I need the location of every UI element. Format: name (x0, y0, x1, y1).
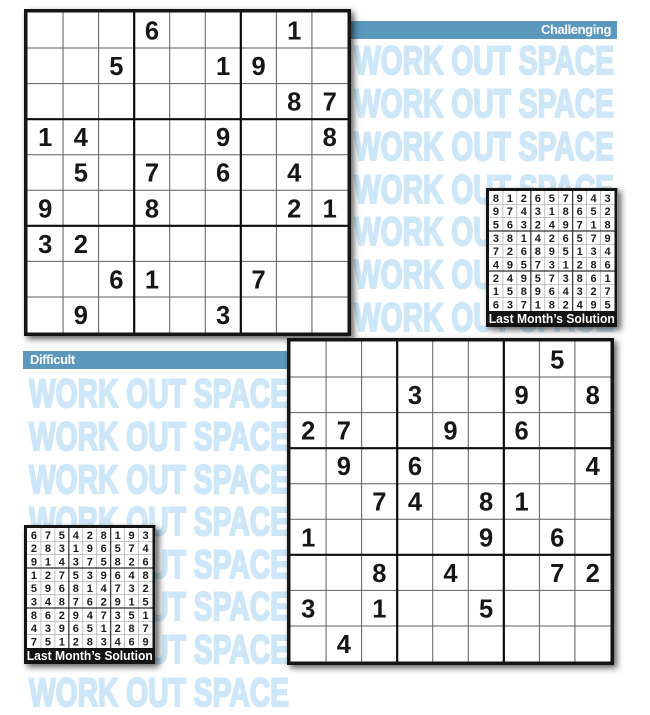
svg-text:9: 9 (479, 524, 493, 552)
svg-text:4: 4 (337, 631, 352, 659)
svg-text:4: 4 (115, 636, 122, 648)
svg-text:6: 6 (563, 233, 569, 245)
svg-text:6: 6 (507, 219, 513, 231)
svg-text:5: 5 (87, 623, 93, 635)
svg-text:5: 5 (73, 570, 79, 582)
svg-text:7: 7 (115, 583, 121, 595)
svg-text:8: 8 (493, 193, 499, 205)
svg-text:2: 2 (493, 273, 499, 285)
svg-text:6: 6 (549, 286, 555, 298)
svg-text:6: 6 (550, 524, 564, 552)
svg-text:7: 7 (577, 219, 583, 231)
svg-text:3: 3 (604, 193, 610, 205)
svg-text:2: 2 (521, 193, 527, 205)
svg-text:9: 9 (87, 543, 93, 555)
svg-text:8: 8 (45, 543, 51, 555)
svg-text:7: 7 (549, 273, 555, 285)
svg-text:1: 1 (549, 206, 555, 218)
svg-text:5: 5 (577, 233, 583, 245)
svg-text:5: 5 (142, 596, 148, 608)
svg-text:5: 5 (563, 246, 569, 258)
svg-text:1: 1 (142, 610, 148, 622)
svg-text:3: 3 (493, 233, 499, 245)
svg-text:9: 9 (443, 418, 457, 446)
svg-text:Last Month’s Solution: Last Month’s Solution (27, 649, 153, 663)
svg-text:3: 3 (87, 570, 93, 582)
svg-text:9: 9 (515, 382, 529, 410)
svg-text:1: 1 (507, 193, 513, 205)
svg-text:5: 5 (507, 286, 513, 298)
svg-text:8: 8 (372, 560, 386, 588)
svg-text:6: 6 (591, 273, 597, 285)
svg-text:4: 4 (563, 286, 570, 298)
svg-text:2: 2 (74, 231, 88, 259)
svg-text:8: 8 (101, 530, 107, 542)
svg-text:9: 9 (507, 259, 513, 271)
svg-text:1: 1 (493, 286, 499, 298)
svg-text:2: 2 (287, 195, 301, 223)
svg-text:2: 2 (101, 596, 107, 608)
svg-text:6: 6 (216, 160, 230, 188)
svg-text:5: 5 (115, 543, 121, 555)
svg-text:3: 3 (101, 636, 107, 648)
svg-text:1: 1 (73, 543, 79, 555)
svg-text:4: 4 (549, 219, 556, 231)
svg-text:9: 9 (337, 453, 351, 481)
svg-text:6: 6 (493, 299, 499, 311)
svg-text:4: 4 (59, 556, 66, 568)
svg-text:9: 9 (252, 53, 266, 81)
svg-text:2: 2 (31, 543, 37, 555)
svg-text:4: 4 (73, 530, 80, 542)
svg-text:3: 3 (521, 219, 527, 231)
svg-text:7: 7 (31, 636, 37, 648)
svg-text:2: 2 (87, 530, 93, 542)
svg-text:1: 1 (38, 124, 52, 152)
svg-text:5: 5 (604, 299, 610, 311)
svg-text:6: 6 (101, 543, 107, 555)
svg-text:6: 6 (521, 246, 527, 258)
svg-text:9: 9 (73, 610, 79, 622)
svg-text:3: 3 (38, 231, 52, 259)
svg-text:3: 3 (577, 286, 583, 298)
svg-text:7: 7 (521, 299, 527, 311)
svg-text:1: 1 (535, 299, 541, 311)
svg-text:4: 4 (142, 543, 149, 555)
svg-text:6: 6 (73, 623, 79, 635)
svg-text:4: 4 (507, 273, 514, 285)
svg-text:6: 6 (129, 636, 135, 648)
svg-text:6: 6 (115, 570, 121, 582)
svg-text:8: 8 (479, 489, 493, 517)
svg-text:8: 8 (142, 570, 148, 582)
svg-text:5: 5 (74, 160, 88, 188)
svg-text:8: 8 (591, 259, 597, 271)
svg-text:9: 9 (549, 246, 555, 258)
svg-text:4: 4 (129, 570, 136, 582)
svg-text:3: 3 (507, 299, 513, 311)
svg-text:7: 7 (535, 259, 541, 271)
svg-text:4: 4 (521, 206, 528, 218)
svg-text:2: 2 (604, 206, 610, 218)
svg-text:1: 1 (323, 195, 337, 223)
svg-text:Last Month’s Solution: Last Month’s Solution (489, 312, 615, 326)
svg-text:5: 5 (521, 259, 527, 271)
svg-text:8: 8 (535, 246, 541, 258)
svg-text:7: 7 (101, 610, 107, 622)
svg-text:7: 7 (87, 556, 93, 568)
svg-text:4: 4 (591, 193, 598, 205)
svg-text:7: 7 (145, 160, 159, 188)
svg-text:8: 8 (31, 610, 37, 622)
svg-text:7: 7 (129, 543, 135, 555)
svg-text:6: 6 (604, 259, 610, 271)
svg-text:3: 3 (549, 259, 555, 271)
svg-text:8: 8 (145, 195, 159, 223)
svg-text:4: 4 (577, 299, 584, 311)
svg-text:6: 6 (142, 556, 148, 568)
svg-text:4: 4 (87, 610, 94, 622)
svg-text:7: 7 (563, 193, 569, 205)
svg-text:4: 4 (535, 233, 542, 245)
svg-text:5: 5 (493, 219, 499, 231)
svg-text:7: 7 (323, 89, 337, 117)
svg-text:1: 1 (591, 219, 597, 231)
svg-text:4: 4 (74, 124, 89, 152)
svg-text:6: 6 (59, 583, 65, 595)
svg-text:2: 2 (142, 583, 148, 595)
svg-text:5: 5 (31, 583, 37, 595)
svg-text:6: 6 (31, 530, 37, 542)
svg-text:5: 5 (535, 273, 541, 285)
svg-text:5: 5 (129, 610, 135, 622)
svg-text:9: 9 (142, 636, 148, 648)
svg-text:9: 9 (216, 124, 230, 152)
svg-text:9: 9 (521, 273, 527, 285)
svg-text:1: 1 (372, 595, 386, 623)
svg-text:8: 8 (549, 299, 555, 311)
svg-text:2: 2 (115, 623, 121, 635)
svg-text:8: 8 (604, 219, 610, 231)
svg-text:7: 7 (59, 570, 65, 582)
svg-text:2: 2 (129, 556, 135, 568)
svg-text:4: 4 (586, 453, 601, 481)
svg-text:3: 3 (115, 610, 121, 622)
svg-text:6: 6 (577, 206, 583, 218)
svg-text:8: 8 (323, 124, 337, 152)
svg-text:9: 9 (101, 570, 107, 582)
svg-text:7: 7 (372, 489, 386, 517)
svg-text:4: 4 (45, 596, 52, 608)
svg-text:1: 1 (563, 259, 569, 271)
svg-text:4: 4 (408, 489, 423, 517)
svg-text:5: 5 (59, 530, 65, 542)
svg-text:3: 3 (591, 246, 597, 258)
svg-text:3: 3 (45, 623, 51, 635)
svg-text:1: 1 (301, 524, 315, 552)
svg-text:5: 5 (550, 346, 564, 374)
svg-text:9: 9 (604, 233, 610, 245)
svg-text:8: 8 (115, 556, 121, 568)
svg-text:9: 9 (38, 195, 52, 223)
svg-text:1: 1 (129, 596, 135, 608)
svg-text:3: 3 (301, 595, 315, 623)
svg-text:1: 1 (287, 17, 301, 45)
svg-text:6: 6 (535, 193, 541, 205)
svg-text:2: 2 (73, 636, 79, 648)
svg-text:3: 3 (408, 382, 422, 410)
svg-text:5: 5 (549, 193, 555, 205)
svg-text:7: 7 (550, 560, 564, 588)
svg-text:9: 9 (74, 302, 88, 330)
svg-text:2: 2 (535, 219, 541, 231)
svg-text:9: 9 (31, 556, 37, 568)
svg-text:2: 2 (591, 286, 597, 298)
svg-text:7: 7 (45, 530, 51, 542)
svg-text:9: 9 (563, 219, 569, 231)
svg-text:7: 7 (507, 206, 513, 218)
svg-text:8: 8 (586, 382, 600, 410)
svg-text:5: 5 (591, 206, 597, 218)
svg-text:1: 1 (115, 530, 121, 542)
svg-text:6: 6 (109, 266, 123, 294)
svg-text:2: 2 (507, 246, 513, 258)
svg-text:5: 5 (45, 636, 51, 648)
svg-text:1: 1 (101, 623, 107, 635)
svg-text:5: 5 (109, 53, 123, 81)
svg-text:2: 2 (45, 570, 51, 582)
svg-text:9: 9 (45, 583, 51, 595)
svg-text:1: 1 (59, 636, 65, 648)
svg-text:7: 7 (591, 233, 597, 245)
svg-text:1: 1 (604, 273, 610, 285)
svg-text:8: 8 (129, 623, 135, 635)
svg-text:8: 8 (87, 636, 93, 648)
svg-text:2: 2 (301, 418, 315, 446)
svg-text:8: 8 (577, 273, 583, 285)
svg-text:9: 9 (591, 299, 597, 311)
svg-text:8: 8 (507, 233, 513, 245)
svg-text:5: 5 (101, 556, 107, 568)
svg-text:8: 8 (563, 206, 569, 218)
svg-text:7: 7 (73, 596, 79, 608)
svg-text:1: 1 (521, 233, 527, 245)
svg-text:6: 6 (87, 596, 93, 608)
svg-text:6: 6 (145, 17, 159, 45)
svg-text:3: 3 (31, 596, 37, 608)
svg-text:2: 2 (549, 233, 555, 245)
svg-text:1: 1 (577, 246, 583, 258)
svg-text:1: 1 (87, 583, 93, 595)
svg-text:9: 9 (59, 623, 65, 635)
svg-text:1: 1 (45, 556, 51, 568)
svg-text:4: 4 (287, 160, 302, 188)
svg-text:1: 1 (515, 489, 529, 517)
svg-text:8: 8 (287, 89, 301, 117)
svg-text:4: 4 (31, 623, 38, 635)
svg-text:9: 9 (535, 286, 541, 298)
svg-text:3: 3 (73, 556, 79, 568)
svg-text:6: 6 (408, 453, 422, 481)
svg-text:2: 2 (577, 259, 583, 271)
svg-text:2: 2 (563, 299, 569, 311)
svg-text:2: 2 (586, 560, 600, 588)
svg-text:2: 2 (59, 610, 65, 622)
svg-text:3: 3 (129, 583, 135, 595)
svg-text:9: 9 (129, 530, 135, 542)
svg-text:7: 7 (252, 266, 266, 294)
svg-text:8: 8 (73, 583, 79, 595)
svg-text:1: 1 (145, 266, 159, 294)
svg-text:7: 7 (337, 418, 351, 446)
svg-text:4: 4 (493, 259, 500, 271)
svg-text:3: 3 (216, 302, 230, 330)
svg-text:9: 9 (115, 596, 121, 608)
svg-text:4: 4 (443, 560, 458, 588)
svg-text:5: 5 (479, 595, 493, 623)
svg-text:3: 3 (142, 530, 148, 542)
svg-text:1: 1 (31, 570, 37, 582)
svg-text:3: 3 (59, 543, 65, 555)
svg-text:4: 4 (604, 246, 611, 258)
svg-text:6: 6 (45, 610, 51, 622)
svg-text:6: 6 (515, 418, 529, 446)
svg-text:3: 3 (535, 206, 541, 218)
svg-text:9: 9 (577, 193, 583, 205)
svg-text:8: 8 (59, 596, 65, 608)
svg-text:7: 7 (493, 246, 499, 258)
svg-text:3: 3 (563, 273, 569, 285)
svg-text:1: 1 (216, 53, 230, 81)
svg-text:7: 7 (142, 623, 148, 635)
svg-text:7: 7 (604, 286, 610, 298)
svg-text:4: 4 (101, 583, 108, 595)
svg-text:8: 8 (521, 286, 527, 298)
svg-text:9: 9 (493, 206, 499, 218)
